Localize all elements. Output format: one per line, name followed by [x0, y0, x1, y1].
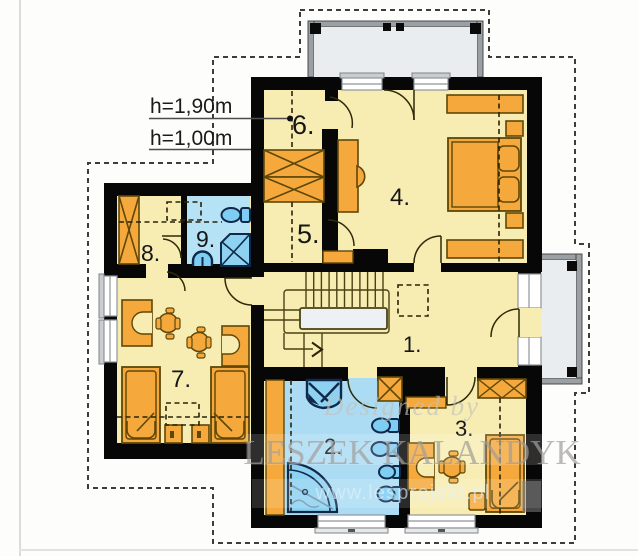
svg-text:4.: 4.	[390, 184, 410, 211]
svg-text:h=1,00m: h=1,00m	[150, 127, 232, 150]
svg-text:Designed by: Designed by	[323, 391, 480, 421]
svg-text:9.: 9.	[196, 226, 215, 252]
svg-text:1.: 1.	[403, 332, 421, 357]
svg-text:5.: 5.	[297, 219, 320, 249]
svg-text:h=1,90m: h=1,90m	[150, 95, 232, 118]
svg-text:LESZEK KALANDYK: LESZEK KALANDYK	[243, 433, 580, 472]
svg-text:6.: 6.	[292, 110, 315, 140]
svg-text:7.: 7.	[171, 366, 191, 393]
svg-text:www.lesprojekt.pl: www.lesprojekt.pl	[315, 482, 491, 504]
svg-text:8.: 8.	[141, 240, 160, 266]
